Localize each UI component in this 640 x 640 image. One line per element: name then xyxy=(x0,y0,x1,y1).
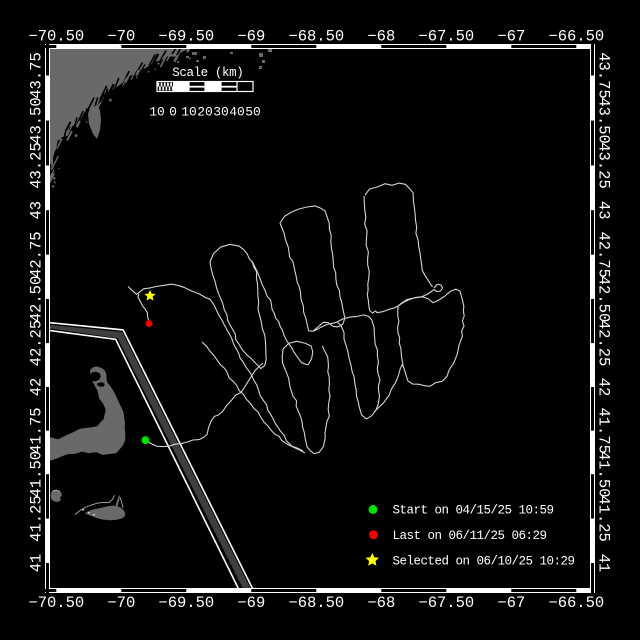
svg-text:−66.50: −66.50 xyxy=(548,28,604,46)
svg-text:43: 43 xyxy=(595,201,613,220)
svg-text:42.50: 42.50 xyxy=(28,276,46,323)
svg-text:−67.50: −67.50 xyxy=(418,28,474,46)
svg-text:20: 20 xyxy=(197,105,213,120)
svg-text:−69: −69 xyxy=(237,594,265,612)
svg-text:41.75: 41.75 xyxy=(595,407,613,454)
svg-text:43.50: 43.50 xyxy=(28,97,46,144)
svg-text:42: 42 xyxy=(28,378,46,397)
svg-text:−67: −67 xyxy=(497,28,525,46)
svg-text:41: 41 xyxy=(595,554,613,573)
svg-text:42: 42 xyxy=(595,378,613,397)
svg-text:42.75: 42.75 xyxy=(595,231,613,278)
svg-text:−68.50: −68.50 xyxy=(288,28,344,46)
svg-text:Selected on 06/10/25 10:29: Selected on 06/10/25 10:29 xyxy=(393,554,575,568)
svg-text:0: 0 xyxy=(169,105,177,120)
svg-text:−70.50: −70.50 xyxy=(28,28,84,46)
svg-text:41.25: 41.25 xyxy=(595,495,613,542)
svg-text:41.75: 41.75 xyxy=(28,407,46,454)
svg-text:−68: −68 xyxy=(367,28,395,46)
svg-text:43.75: 43.75 xyxy=(28,52,46,99)
svg-text:−70.50: −70.50 xyxy=(28,594,84,612)
svg-text:10: 10 xyxy=(149,105,165,120)
svg-text:−68: −68 xyxy=(367,594,395,612)
svg-text:−69.50: −69.50 xyxy=(158,28,214,46)
svg-text:41.25: 41.25 xyxy=(28,495,46,542)
svg-text:40: 40 xyxy=(229,105,245,120)
svg-text:−70: −70 xyxy=(107,28,135,46)
svg-text:43: 43 xyxy=(28,201,46,220)
svg-text:42.25: 42.25 xyxy=(28,320,46,367)
svg-text:43.25: 43.25 xyxy=(28,142,46,189)
svg-text:41.50: 41.50 xyxy=(595,451,613,498)
svg-text:−67.50: −67.50 xyxy=(418,594,474,612)
svg-text:42.75: 42.75 xyxy=(28,231,46,278)
svg-text:30: 30 xyxy=(213,105,229,120)
svg-text:41.50: 41.50 xyxy=(28,451,46,498)
svg-text:50: 50 xyxy=(245,105,261,120)
svg-text:42.50: 42.50 xyxy=(595,276,613,323)
svg-text:−70: −70 xyxy=(107,594,135,612)
svg-text:42.25: 42.25 xyxy=(595,320,613,367)
svg-text:Last on 06/11/25 06:29: Last on 06/11/25 06:29 xyxy=(393,529,547,543)
svg-text:Start on 04/15/25 10:59: Start on 04/15/25 10:59 xyxy=(393,504,554,518)
svg-text:43.75: 43.75 xyxy=(595,52,613,99)
svg-text:−69: −69 xyxy=(237,28,265,46)
svg-text:41: 41 xyxy=(28,554,46,573)
svg-text:43.25: 43.25 xyxy=(595,142,613,189)
svg-text:−69.50: −69.50 xyxy=(158,594,214,612)
svg-text:−66.50: −66.50 xyxy=(548,594,604,612)
svg-text:43.50: 43.50 xyxy=(595,97,613,144)
svg-text:−68.50: −68.50 xyxy=(288,594,344,612)
svg-text:−67: −67 xyxy=(497,594,525,612)
svg-text:10: 10 xyxy=(181,105,197,120)
svg-text:Scale (km): Scale (km) xyxy=(172,66,243,80)
